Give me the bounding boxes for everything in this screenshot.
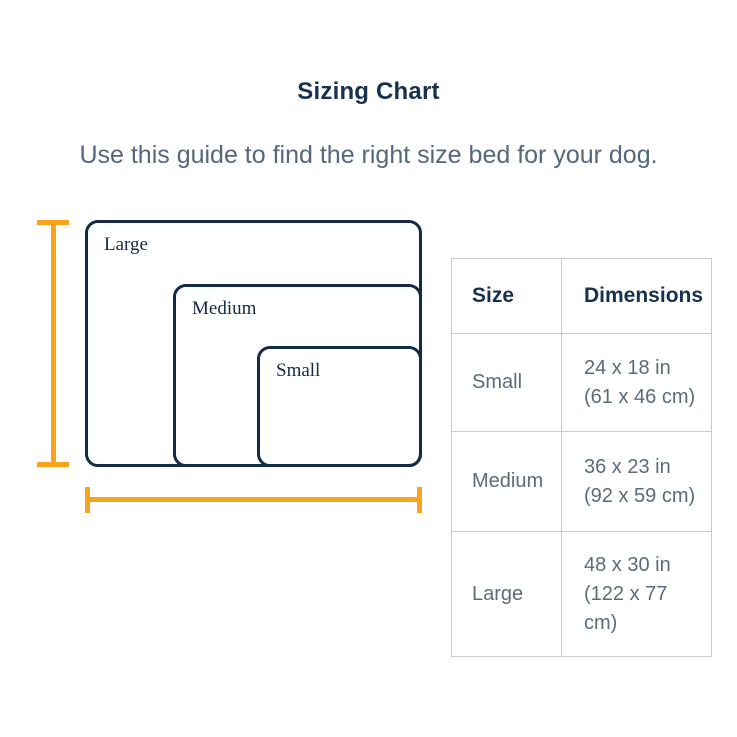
size-cell: Small: [452, 334, 562, 432]
dimensions-cell: 36 x 23 in (92 x 59 cm): [562, 432, 712, 532]
dimensions-cm: (122 x 77: [584, 580, 705, 609]
size-cell: Large: [452, 532, 562, 657]
table-row-small: Small 24 x 18 in (61 x 46 cm): [452, 334, 712, 432]
dimensions-inches: 48 x 30 in: [584, 551, 705, 580]
table-row-medium: Medium 36 x 23 in (92 x 59 cm): [452, 432, 712, 532]
table-row-large: Large 48 x 30 in (122 x 77 cm): [452, 532, 712, 657]
dimensions-cell: 48 x 30 in (122 x 77 cm): [562, 532, 712, 657]
dimensions-cell: 24 x 18 in (61 x 46 cm): [562, 334, 712, 432]
dimensions-inches: 24 x 18 in: [584, 354, 705, 383]
bed-label-small: Small: [276, 360, 320, 382]
bed-label-large: Large: [104, 234, 148, 256]
dimensions-cm: (92 x 59 cm): [584, 482, 705, 511]
size-cell: Medium: [452, 432, 562, 532]
bed-label-medium: Medium: [192, 298, 256, 320]
measure-bar-horizontal: [89, 497, 418, 502]
page-title: Sizing Chart: [0, 78, 737, 106]
dimensions-cm: (61 x 46 cm): [584, 383, 705, 412]
dimensions-column-header: Dimensions: [562, 259, 712, 334]
sizing-table: Size Dimensions Small 24 x 18 in (61 x 4…: [451, 258, 712, 657]
dimensions-cm-wrap: cm): [584, 609, 705, 638]
sizing-chart-page: Sizing Chart Use this guide to find the …: [0, 0, 737, 737]
height-measure-line: [37, 220, 69, 467]
size-column-header: Size: [452, 259, 562, 334]
width-measure-line: [85, 487, 422, 513]
measure-bar-vertical: [51, 224, 56, 463]
measure-cap-bottom: [37, 462, 69, 467]
page-subtitle: Use this guide to find the right size be…: [0, 141, 737, 170]
measure-cap-right: [417, 487, 422, 513]
dimensions-inches: 36 x 23 in: [584, 453, 705, 482]
bed-outline-small: Small: [257, 346, 422, 467]
table-header-row: Size Dimensions: [452, 259, 712, 334]
